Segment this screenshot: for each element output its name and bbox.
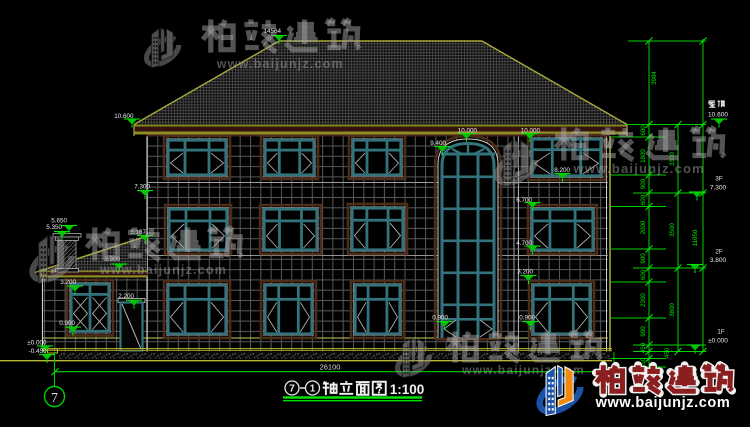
svg-text:900: 900: [640, 178, 647, 189]
svg-text:3.200: 3.200: [60, 279, 76, 286]
svg-text:450: 450: [640, 342, 647, 353]
svg-text:www.baijunjz.com: www.baijunjz.com: [573, 161, 705, 176]
svg-text:450: 450: [664, 347, 671, 358]
svg-text:0.900: 0.900: [519, 315, 535, 322]
svg-text:2.200: 2.200: [118, 293, 134, 300]
svg-text:7.300: 7.300: [710, 185, 727, 192]
svg-text:±0.000: ±0.000: [708, 338, 728, 345]
svg-text:3.200: 3.200: [517, 269, 533, 276]
svg-text:3F: 3F: [715, 176, 723, 183]
svg-text:10.600: 10.600: [708, 112, 728, 119]
svg-text:0.900: 0.900: [59, 320, 75, 327]
svg-text:1: 1: [310, 384, 316, 395]
svg-text:26100: 26100: [320, 363, 341, 372]
svg-text:1:100: 1:100: [390, 382, 425, 397]
svg-text:1F: 1F: [717, 329, 725, 336]
svg-text:-0.450: -0.450: [29, 348, 47, 355]
svg-text:3.800: 3.800: [710, 257, 727, 264]
svg-text:600: 600: [640, 194, 647, 205]
svg-text:11050: 11050: [692, 229, 699, 246]
svg-text:7: 7: [289, 384, 295, 395]
svg-text:900: 900: [640, 326, 647, 337]
svg-text:600: 600: [640, 125, 647, 136]
svg-text:7.300: 7.300: [134, 184, 150, 191]
svg-text:3800: 3800: [669, 303, 676, 317]
svg-text:5.350: 5.350: [46, 224, 62, 231]
svg-text:±0.000: ±0.000: [27, 339, 47, 346]
svg-text:600: 600: [640, 269, 647, 280]
svg-text:2300: 2300: [640, 293, 647, 307]
svg-text:0.900: 0.900: [432, 315, 448, 322]
svg-text:www.baijunjz.com: www.baijunjz.com: [595, 395, 731, 411]
svg-text:7: 7: [51, 391, 58, 406]
svg-text:9.400: 9.400: [430, 140, 446, 147]
svg-text:900: 900: [640, 253, 647, 264]
svg-text:www.baijunjz.com: www.baijunjz.com: [99, 263, 227, 277]
svg-text:2000: 2000: [640, 220, 647, 234]
svg-text:2F: 2F: [715, 249, 723, 256]
svg-text:www.baijunjz.com: www.baijunjz.com: [216, 57, 344, 71]
svg-text:3984: 3984: [651, 71, 658, 85]
svg-text:3500: 3500: [669, 223, 676, 237]
